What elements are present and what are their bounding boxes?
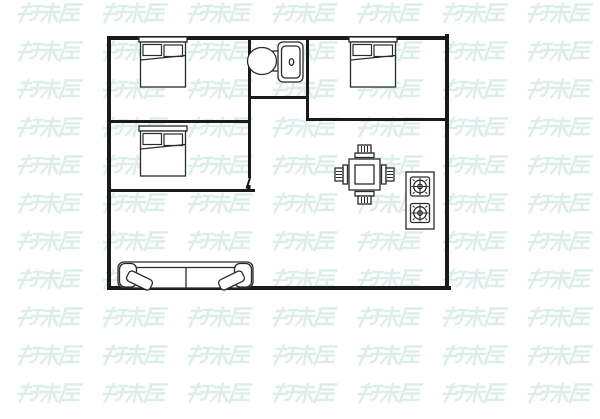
burner-top — [411, 177, 430, 196]
stove-icon — [406, 172, 434, 229]
wall-bathroom-right — [306, 36, 309, 121]
chair-left — [335, 165, 348, 184]
wall-left — [107, 36, 111, 290]
burner-bottom — [411, 204, 430, 223]
chair-top — [355, 145, 374, 158]
double-bed-icon — [139, 37, 187, 87]
wall-bathroom-bottom — [250, 96, 309, 99]
double-bed-icon — [139, 126, 187, 176]
sofa-icon — [118, 262, 253, 291]
dining-table-icon — [335, 145, 394, 204]
toilet-icon — [248, 42, 304, 82]
chair-right — [382, 165, 395, 184]
floor-plan — [0, 0, 600, 419]
double-bed-icon — [349, 37, 397, 87]
wall-bedroom-right-bottom — [306, 118, 445, 121]
wall-bedroom-mid-bottom — [111, 189, 255, 192]
wall-bedroom-left-divider — [111, 120, 250, 123]
wall-right — [445, 34, 449, 290]
floor-plan-image — [0, 0, 600, 419]
chair-bottom — [355, 192, 374, 205]
